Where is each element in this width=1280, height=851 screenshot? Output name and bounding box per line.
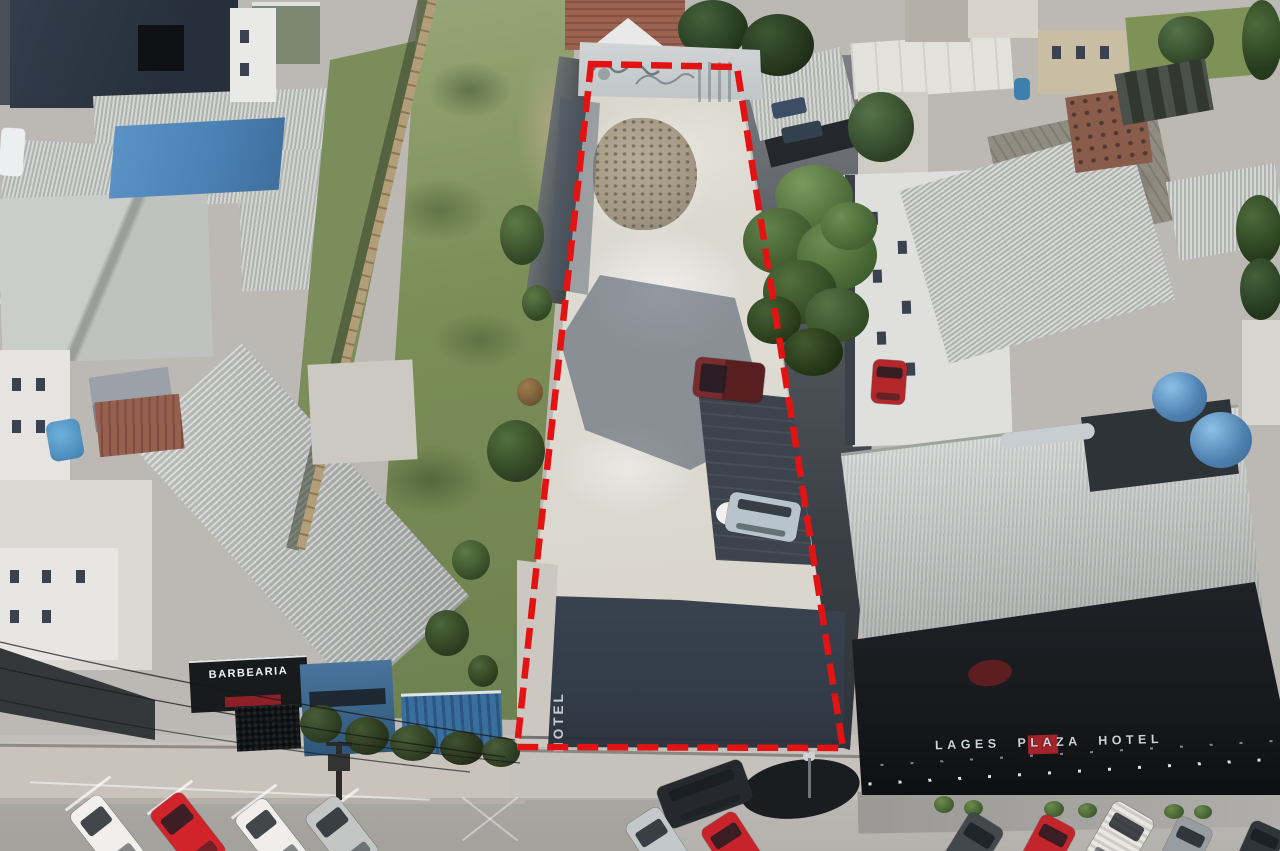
- tree-foliage: [1236, 195, 1280, 265]
- blue-barrel: [1014, 78, 1030, 100]
- window: [1100, 46, 1109, 59]
- white-building-facade: [0, 548, 118, 660]
- white-van: [0, 127, 26, 177]
- large-tree: [735, 160, 885, 390]
- pole-crossarm: [326, 742, 352, 746]
- utility-pole: [336, 742, 342, 800]
- tree-foliage: [1158, 16, 1214, 66]
- bush: [522, 285, 552, 321]
- water-tank: [1190, 412, 1252, 468]
- bush: [452, 540, 490, 580]
- tree-foliage: [390, 725, 436, 761]
- tree-foliage: [1240, 258, 1280, 320]
- tree-foliage: [300, 705, 342, 743]
- window: [12, 378, 21, 391]
- beige-house: [1038, 30, 1128, 94]
- tree-foliage: [821, 202, 877, 250]
- window: [240, 63, 249, 76]
- window: [240, 30, 249, 43]
- window: [902, 301, 911, 314]
- window: [10, 570, 19, 583]
- window: [906, 362, 915, 375]
- pole-transformer: [328, 754, 350, 771]
- white-wall-right-edge: [1242, 320, 1280, 425]
- window: [898, 241, 907, 254]
- sidewalk-bush: [1194, 805, 1212, 819]
- blue-tarp-roof: [109, 117, 285, 198]
- concrete-pad: [307, 359, 417, 464]
- bush: [487, 420, 545, 482]
- hip-roof-apartment: [0, 191, 213, 363]
- pavement-marking-hotel: HOTEL: [551, 650, 573, 752]
- white-shed-roofs: [850, 32, 1014, 99]
- sidewalk-bush: [1078, 803, 1097, 818]
- bush: [425, 610, 469, 656]
- blue-pool: [45, 417, 85, 462]
- tree-foliage: [848, 92, 914, 162]
- window: [1052, 46, 1061, 59]
- window: [12, 420, 21, 433]
- white-roof-block: [968, 0, 1038, 38]
- tree-foliage: [482, 737, 520, 767]
- sidewalk-bush: [934, 796, 954, 813]
- aerial-photo: BARBEARIA: [0, 0, 1280, 851]
- window: [42, 610, 51, 623]
- window: [10, 610, 19, 623]
- street-lamp-pole: [808, 758, 811, 798]
- window: [36, 378, 45, 391]
- gray-roof-block: [905, 0, 970, 42]
- window: [76, 570, 85, 583]
- dry-bush: [517, 378, 543, 406]
- tree-foliage: [345, 717, 389, 755]
- window: [42, 570, 51, 583]
- water-tank: [1152, 372, 1207, 422]
- brown-tile-roof-house: [94, 394, 184, 458]
- wall-door-grid: [698, 62, 738, 102]
- window: [1076, 46, 1085, 59]
- bush: [468, 655, 498, 687]
- barbershop-sign: BARBEARIA: [189, 657, 308, 682]
- white-tower-building: [230, 8, 276, 102]
- tree-foliage: [783, 328, 843, 376]
- street-trees-row: [290, 685, 520, 760]
- rubble-pile: [593, 118, 697, 230]
- roof-chimney-box: [138, 25, 184, 71]
- bush: [500, 205, 544, 265]
- tree-foliage: [1242, 0, 1280, 80]
- tree-foliage: [440, 731, 484, 765]
- window: [36, 420, 45, 433]
